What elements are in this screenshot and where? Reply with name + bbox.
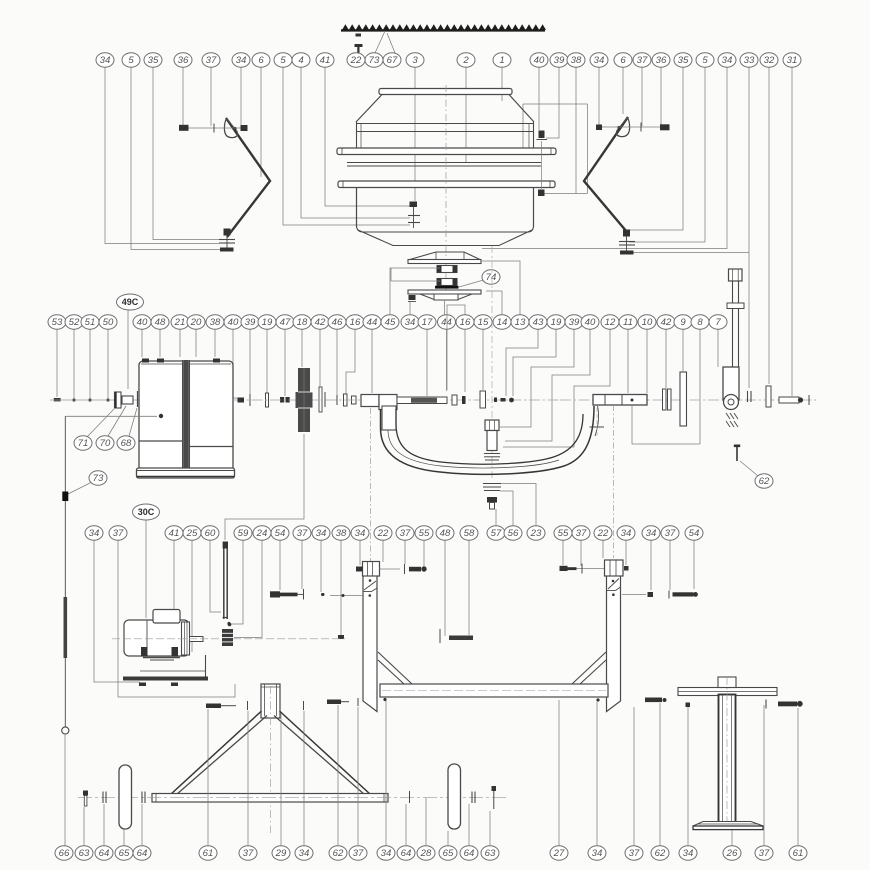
svg-text:37: 37 <box>665 528 676 539</box>
svg-text:5: 5 <box>280 55 286 66</box>
svg-text:5: 5 <box>702 55 708 66</box>
svg-text:34: 34 <box>683 848 694 859</box>
svg-text:10: 10 <box>642 317 653 328</box>
svg-text:52: 52 <box>69 317 80 328</box>
svg-text:6: 6 <box>258 55 264 66</box>
svg-text:64: 64 <box>99 848 110 859</box>
svg-text:34: 34 <box>316 528 327 539</box>
svg-text:6: 6 <box>620 55 626 66</box>
svg-text:43: 43 <box>533 317 544 328</box>
svg-text:55: 55 <box>558 528 569 539</box>
svg-text:34: 34 <box>100 55 111 66</box>
svg-text:65: 65 <box>443 848 454 859</box>
svg-text:14: 14 <box>497 317 508 328</box>
svg-text:61: 61 <box>203 848 214 859</box>
svg-text:7: 7 <box>715 317 721 328</box>
svg-text:31: 31 <box>787 55 798 66</box>
svg-text:16: 16 <box>350 317 361 328</box>
svg-text:47: 47 <box>280 317 291 328</box>
svg-text:36: 36 <box>178 55 189 66</box>
svg-text:5: 5 <box>128 55 134 66</box>
svg-text:42: 42 <box>315 317 326 328</box>
svg-text:37: 37 <box>759 848 770 859</box>
svg-text:40: 40 <box>228 317 239 328</box>
svg-text:8: 8 <box>697 317 703 328</box>
svg-text:37: 37 <box>637 55 648 66</box>
svg-text:45: 45 <box>385 317 396 328</box>
svg-text:40: 40 <box>585 317 596 328</box>
svg-text:41: 41 <box>169 528 180 539</box>
svg-text:38: 38 <box>336 528 347 539</box>
svg-text:26: 26 <box>726 848 738 859</box>
svg-text:34: 34 <box>236 55 247 66</box>
svg-text:44: 44 <box>367 317 378 328</box>
svg-text:38: 38 <box>210 317 221 328</box>
svg-text:63: 63 <box>79 848 90 859</box>
svg-text:67: 67 <box>387 55 398 66</box>
svg-text:29: 29 <box>275 848 287 859</box>
svg-text:37: 37 <box>629 848 640 859</box>
svg-text:37: 37 <box>297 528 308 539</box>
svg-text:18: 18 <box>297 317 308 328</box>
svg-text:39: 39 <box>554 55 565 66</box>
svg-text:35: 35 <box>148 55 159 66</box>
svg-text:15: 15 <box>478 317 489 328</box>
svg-text:64: 64 <box>464 848 475 859</box>
svg-text:11: 11 <box>623 317 633 328</box>
svg-text:48: 48 <box>440 528 451 539</box>
svg-text:22: 22 <box>377 528 389 539</box>
svg-text:24: 24 <box>256 528 268 539</box>
svg-text:62: 62 <box>655 848 666 859</box>
svg-text:34: 34 <box>381 848 392 859</box>
svg-text:64: 64 <box>401 848 412 859</box>
svg-text:63: 63 <box>485 848 496 859</box>
svg-text:22: 22 <box>350 55 362 66</box>
svg-text:54: 54 <box>275 528 286 539</box>
svg-text:58: 58 <box>464 528 475 539</box>
svg-text:23: 23 <box>530 528 542 539</box>
svg-text:66: 66 <box>59 848 70 859</box>
svg-text:65: 65 <box>119 848 130 859</box>
svg-text:2: 2 <box>462 55 469 66</box>
svg-text:46: 46 <box>332 317 343 328</box>
svg-text:28: 28 <box>420 848 432 859</box>
svg-text:54: 54 <box>689 528 700 539</box>
svg-text:25: 25 <box>186 528 198 539</box>
svg-text:27: 27 <box>553 848 565 859</box>
svg-text:22: 22 <box>597 528 609 539</box>
svg-text:68: 68 <box>121 438 132 449</box>
svg-text:44: 44 <box>441 317 452 328</box>
svg-text:74: 74 <box>486 272 497 283</box>
svg-text:39: 39 <box>569 317 580 328</box>
svg-text:37: 37 <box>113 528 124 539</box>
svg-text:9: 9 <box>680 317 686 328</box>
svg-text:17: 17 <box>422 317 433 328</box>
svg-text:70: 70 <box>100 438 111 449</box>
svg-text:53: 53 <box>52 317 63 328</box>
svg-text:34: 34 <box>355 528 366 539</box>
svg-text:34: 34 <box>592 848 603 859</box>
svg-text:37: 37 <box>353 848 364 859</box>
svg-text:20: 20 <box>190 317 202 328</box>
svg-text:34: 34 <box>646 528 657 539</box>
svg-text:61: 61 <box>793 848 804 859</box>
svg-text:30C: 30C <box>138 507 155 517</box>
svg-text:40: 40 <box>137 317 148 328</box>
svg-text:34: 34 <box>722 55 733 66</box>
svg-text:3: 3 <box>412 55 418 66</box>
svg-text:34: 34 <box>89 528 100 539</box>
svg-text:36: 36 <box>656 55 667 66</box>
svg-text:40: 40 <box>534 55 545 66</box>
svg-text:50: 50 <box>103 317 114 328</box>
svg-text:34: 34 <box>621 528 632 539</box>
svg-text:73: 73 <box>93 473 104 484</box>
svg-text:49C: 49C <box>122 297 139 307</box>
svg-text:35: 35 <box>678 55 689 66</box>
svg-text:64: 64 <box>137 848 148 859</box>
svg-text:37: 37 <box>576 528 587 539</box>
svg-text:19: 19 <box>551 317 562 328</box>
svg-text:12: 12 <box>605 317 616 328</box>
svg-text:37: 37 <box>243 848 254 859</box>
svg-text:37: 37 <box>400 528 411 539</box>
svg-text:60: 60 <box>205 528 216 539</box>
svg-text:55: 55 <box>419 528 430 539</box>
svg-text:37: 37 <box>206 55 217 66</box>
svg-text:48: 48 <box>155 317 166 328</box>
svg-text:41: 41 <box>320 55 331 66</box>
svg-text:19: 19 <box>262 317 273 328</box>
svg-text:62: 62 <box>333 848 344 859</box>
svg-text:39: 39 <box>245 317 256 328</box>
svg-text:56: 56 <box>508 528 519 539</box>
svg-text:51: 51 <box>85 317 96 328</box>
svg-text:34: 34 <box>594 55 605 66</box>
svg-text:34: 34 <box>405 317 416 328</box>
svg-text:62: 62 <box>759 476 770 487</box>
svg-text:4: 4 <box>298 55 303 66</box>
svg-text:1: 1 <box>499 55 504 66</box>
svg-text:32: 32 <box>764 55 775 66</box>
svg-text:57: 57 <box>491 528 502 539</box>
svg-text:71: 71 <box>78 438 89 449</box>
svg-text:16: 16 <box>460 317 471 328</box>
svg-text:42: 42 <box>661 317 672 328</box>
svg-text:38: 38 <box>571 55 582 66</box>
svg-text:21: 21 <box>174 317 186 328</box>
svg-text:59: 59 <box>238 528 249 539</box>
svg-text:33: 33 <box>744 55 755 66</box>
svg-text:13: 13 <box>515 317 526 328</box>
svg-text:34: 34 <box>299 848 310 859</box>
svg-text:73: 73 <box>369 55 380 66</box>
